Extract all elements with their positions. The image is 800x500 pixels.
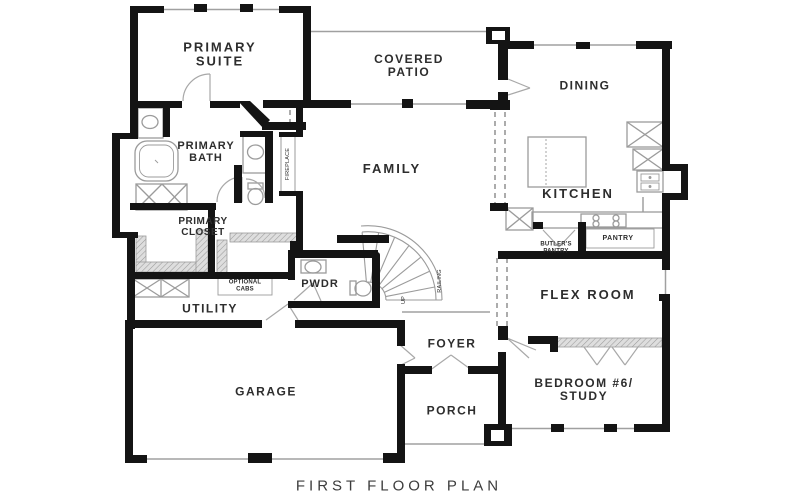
room-label-family: FAMILY: [363, 162, 421, 176]
room-label-flex-room: FLEX ROOM: [540, 288, 635, 302]
room-label-primary-suite: PRIMARY SUITE: [183, 41, 256, 70]
room-label-butlers-pantry: BUTLER'S PANTRY: [540, 241, 571, 254]
dashed-openings: [290, 110, 507, 328]
room-label-covered-patio: COVERED PATIO: [374, 53, 444, 79]
label-fireplace: FIREPLACE: [285, 148, 291, 180]
plan-title: FIRST FLOOR PLAN: [296, 478, 502, 495]
room-label-bedroom6: BEDROOM #6/ STUDY: [534, 377, 633, 403]
floor-plan-page: PRIMARY SUITE COVERED PATIO DINING FAMIL…: [0, 0, 800, 500]
room-label-garage: GARAGE: [235, 385, 297, 398]
room-label-optional-cabs: OPTIONAL CABS: [229, 279, 262, 292]
room-label-utility: UTILITY: [182, 302, 238, 315]
room-label-foyer: FOYER: [428, 337, 477, 350]
room-label-primary-closet: PRIMARY CLOSET: [178, 216, 227, 238]
label-up: UP: [401, 296, 407, 304]
room-label-kitchen: KITCHEN: [542, 187, 614, 201]
room-label-pwdr: PWDR: [301, 278, 339, 290]
room-label-porch: PORCH: [427, 404, 478, 417]
room-label-dining: DINING: [560, 79, 611, 92]
room-label-pantry: PANTRY: [603, 235, 634, 243]
label-railing: RAILING: [437, 269, 443, 292]
room-label-primary-bath: PRIMARY BATH: [177, 140, 234, 164]
